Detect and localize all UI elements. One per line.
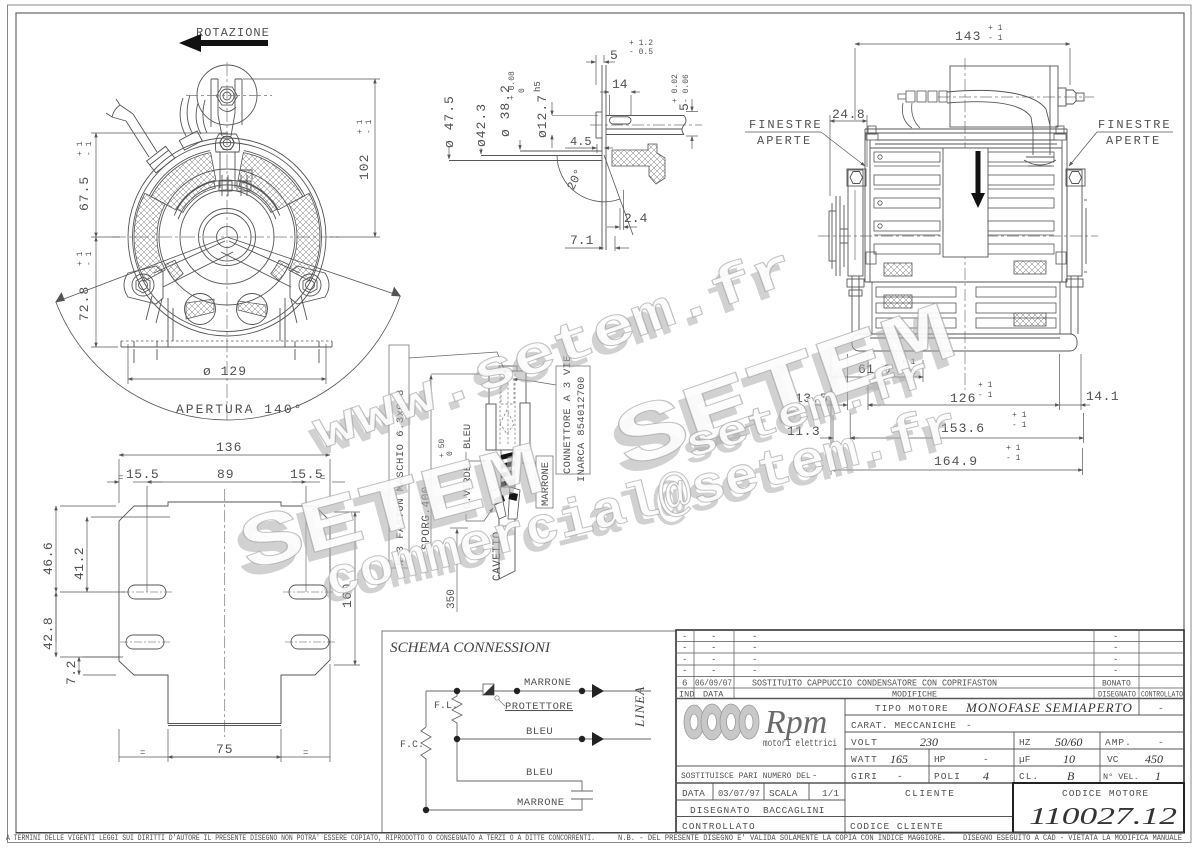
- svg-text:VOLT: VOLT: [851, 737, 878, 748]
- svg-text:CODICE CLIENTE: CODICE CLIENTE: [850, 821, 944, 832]
- svg-text:BLEU: BLEU: [526, 767, 553, 779]
- svg-text:N.B. - DEL PRESENTE DISEGNO E': N.B. - DEL PRESENTE DISEGNO E' VALIDA SO…: [618, 834, 946, 843]
- svg-text:110027.12: 110027.12: [1029, 804, 1177, 830]
- svg-text:ø 47.5: ø 47.5: [442, 95, 457, 148]
- svg-text:ø12.7: ø12.7: [535, 94, 550, 138]
- svg-text:42.8: 42.8: [41, 617, 56, 650]
- svg-text:- 1: - 1: [85, 251, 94, 266]
- svg-text:MONOFASE SEMIAPERTO: MONOFASE SEMIAPERTO: [965, 700, 1133, 715]
- svg-text:- 1: - 1: [365, 119, 374, 134]
- svg-text:-: -: [752, 655, 757, 665]
- svg-text:µF: µF: [1019, 754, 1031, 765]
- svg-text:+ 1: + 1: [76, 251, 85, 266]
- svg-text:03/07/97: 03/07/97: [718, 788, 760, 799]
- svg-text:VC: VC: [1107, 754, 1119, 765]
- svg-text:-: -: [711, 632, 716, 642]
- svg-text:- 1: - 1: [85, 141, 94, 156]
- svg-text:-: -: [682, 666, 687, 676]
- svg-text:- 1: - 1: [978, 391, 993, 400]
- svg-text:CARAT. MECCANICHE: CARAT. MECCANICHE: [851, 720, 956, 731]
- svg-text:PROTETTORE: PROTETTORE: [505, 701, 573, 713]
- svg-text:46.6: 46.6: [41, 542, 56, 575]
- svg-text:SCALA: SCALA: [769, 788, 798, 799]
- svg-text:-: -: [966, 720, 972, 731]
- svg-text:HP: HP: [934, 754, 946, 765]
- svg-text:2.4: 2.4: [624, 211, 648, 226]
- svg-text:+ 0.02: + 0.02: [671, 74, 680, 103]
- svg-text:1/1: 1/1: [822, 788, 839, 799]
- svg-text:4.5: 4.5: [570, 135, 592, 149]
- svg-text:- 1: - 1: [1006, 454, 1021, 463]
- svg-text:+ 1: + 1: [356, 119, 365, 134]
- svg-text:ø 129: ø 129: [203, 364, 247, 379]
- svg-text:-: -: [983, 754, 989, 765]
- svg-text:350: 350: [446, 589, 458, 609]
- svg-text:126: 126: [950, 391, 976, 406]
- svg-text:LINEA: LINEA: [632, 686, 647, 728]
- svg-text:BACCAGLINI: BACCAGLINI: [763, 805, 825, 816]
- svg-text:-: -: [897, 771, 903, 782]
- svg-text:HZ: HZ: [1019, 737, 1031, 748]
- svg-text:7.1: 7.1: [570, 233, 594, 248]
- svg-text:=: =: [140, 748, 145, 758]
- svg-text:+ 1: + 1: [76, 141, 85, 156]
- svg-text:FINESTRE: FINESTRE: [1098, 118, 1172, 132]
- svg-text:-: -: [711, 655, 716, 665]
- svg-text:DISEGNATO: DISEGNATO: [690, 805, 750, 816]
- svg-text:67.5: 67.5: [77, 176, 92, 211]
- svg-text:BONATO: BONATO: [1102, 680, 1131, 689]
- svg-text:WATT: WATT: [851, 754, 878, 765]
- svg-text:450: 450: [1145, 752, 1163, 766]
- svg-text:h5: h5: [533, 81, 543, 92]
- svg-text:-: -: [1158, 703, 1164, 714]
- svg-text:B: B: [1067, 769, 1075, 783]
- svg-text:06/09/07: 06/09/07: [695, 679, 732, 689]
- svg-text:136: 136: [216, 440, 242, 455]
- svg-text:+ 0.08: + 0.08: [508, 71, 517, 100]
- svg-text:MARRONE: MARRONE: [517, 797, 565, 809]
- svg-text:SOSTITUITO CAPPUCCIO CONDENSAT: SOSTITUITO CAPPUCCIO CONDENSATORE CON CO…: [752, 679, 997, 689]
- svg-text:75: 75: [216, 742, 234, 757]
- svg-text:-: -: [752, 632, 757, 642]
- svg-text:ROTAZIONE: ROTAZIONE: [196, 26, 270, 40]
- svg-text:F.L.: F.L.: [434, 701, 458, 712]
- svg-text:FINESTRE: FINESTRE: [749, 118, 823, 132]
- svg-text:SCHEMA CONNESSIONI: SCHEMA CONNESSIONI: [390, 640, 551, 656]
- svg-text:6: 6: [682, 679, 687, 689]
- svg-text:-: -: [711, 666, 716, 676]
- svg-text:=: =: [303, 748, 308, 758]
- svg-text:-: -: [812, 771, 817, 781]
- svg-text:-: -: [1113, 632, 1118, 642]
- svg-text:0: 0: [518, 88, 527, 93]
- svg-text:-: -: [711, 643, 716, 653]
- svg-text:- 0.5: - 0.5: [629, 48, 653, 57]
- svg-text:+ 1.2: + 1.2: [629, 39, 653, 48]
- svg-text:24.8: 24.8: [832, 107, 865, 122]
- svg-text:230: 230: [920, 735, 938, 749]
- svg-text:N° VEL.: N° VEL.: [1103, 772, 1139, 782]
- svg-text:4: 4: [983, 769, 989, 783]
- svg-text:MARRONE: MARRONE: [524, 677, 572, 689]
- svg-text:APERTURA 140°: APERTURA 140°: [176, 402, 303, 417]
- svg-text:50/60: 50/60: [1055, 735, 1082, 749]
- svg-text:+ 1: + 1: [978, 381, 993, 390]
- svg-text:-: -: [752, 643, 757, 653]
- svg-text:-: -: [1158, 737, 1164, 748]
- svg-text:-: -: [1113, 655, 1118, 665]
- svg-text:APERTE: APERTE: [1106, 134, 1161, 148]
- svg-text:motori elettrici: motori elettrici: [763, 738, 837, 750]
- svg-text:15.5: 15.5: [290, 467, 323, 482]
- svg-text:-: -: [682, 632, 687, 642]
- svg-text:7.2: 7.2: [64, 660, 79, 685]
- svg-text:AMP.: AMP.: [1105, 737, 1132, 748]
- svg-text:DATA: DATA: [682, 788, 705, 799]
- svg-text:89: 89: [217, 467, 235, 482]
- svg-text:Rpm: Rpm: [764, 704, 827, 741]
- svg-text:- 1: - 1: [1012, 421, 1027, 430]
- svg-text:72.8: 72.8: [77, 286, 92, 321]
- svg-text:-: -: [752, 666, 757, 676]
- svg-text:DISEGNO ESEGUITO A CAD - VIETA: DISEGNO ESEGUITO A CAD - VIETATA LA MODI…: [963, 834, 1182, 843]
- svg-text:-: -: [682, 655, 687, 665]
- svg-text:=: =: [118, 473, 123, 483]
- svg-text:+ 1: + 1: [1006, 444, 1021, 453]
- svg-text:CONTROLLATO: CONTROLLATO: [682, 821, 756, 832]
- svg-text:+ 1: + 1: [1012, 411, 1027, 420]
- svg-text:-: -: [1113, 643, 1118, 653]
- svg-text:=: =: [320, 473, 325, 483]
- svg-text:APERTE: APERTE: [757, 134, 812, 148]
- svg-text:102: 102: [357, 154, 372, 180]
- svg-text:GIRI: GIRI: [851, 771, 878, 782]
- svg-text:14.1: 14.1: [1086, 389, 1119, 404]
- svg-text:F.C.: F.C.: [400, 740, 424, 751]
- svg-text:CLIENTE: CLIENTE: [905, 788, 955, 799]
- svg-text:5: 5: [610, 48, 618, 63]
- svg-text:-: -: [682, 643, 687, 653]
- svg-text:POLI: POLI: [934, 771, 961, 782]
- svg-text:- 0.06: - 0.06: [682, 74, 691, 103]
- svg-text:INARCA 854012700: INARCA 854012700: [576, 376, 588, 482]
- svg-text:1: 1: [1155, 769, 1161, 783]
- svg-text:ø42.3: ø42.3: [474, 103, 489, 147]
- svg-text:41.2: 41.2: [72, 547, 87, 580]
- svg-text:SOSTITUISCE PARI NUMERO DEL: SOSTITUISCE PARI NUMERO DEL: [681, 772, 811, 781]
- svg-text:- 1: - 1: [988, 34, 1003, 43]
- svg-text:5: 5: [677, 103, 692, 111]
- svg-text:14: 14: [612, 77, 628, 92]
- svg-text:A TERMINI DELLE VIGENTI LEGGI: A TERMINI DELLE VIGENTI LEGGI SUI DIRITT…: [6, 834, 595, 843]
- svg-text:15.5: 15.5: [126, 467, 159, 482]
- svg-text:143: 143: [955, 29, 981, 44]
- svg-text:10: 10: [1063, 752, 1075, 766]
- svg-text:CL.: CL.: [1019, 771, 1039, 782]
- svg-text:-: -: [1113, 666, 1118, 676]
- svg-text:BLEU: BLEU: [526, 726, 553, 738]
- svg-text:+ 1: + 1: [988, 24, 1003, 33]
- svg-text:TIPO MOTORE: TIPO MOTORE: [875, 703, 949, 714]
- svg-text:165: 165: [890, 752, 908, 766]
- svg-text:CODICE MOTORE: CODICE MOTORE: [1062, 788, 1149, 799]
